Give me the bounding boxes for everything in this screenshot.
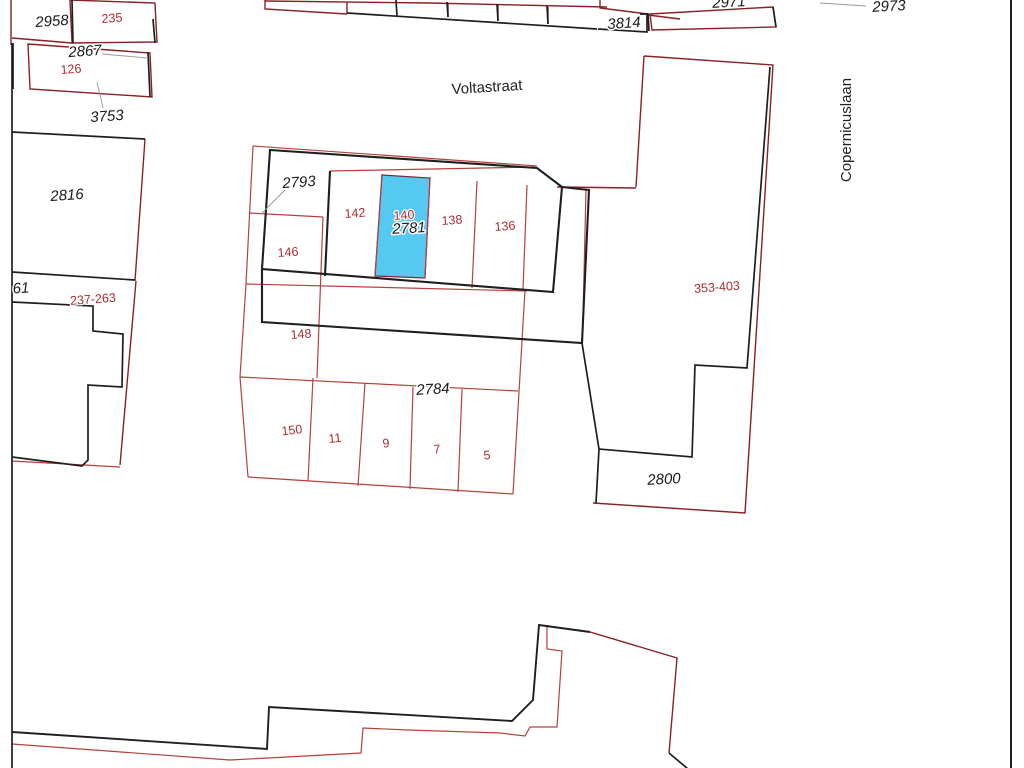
- subdivision-lines: [12, 146, 586, 760]
- parcel-label-2971: 2971: [711, 0, 746, 12]
- house-number-237-263: 237-263: [70, 291, 117, 308]
- street-label-Copernicuslaan: Copernicuslaan: [838, 78, 855, 182]
- parcel-label-2800: 2800: [646, 470, 682, 489]
- parcel-label-2793: 2793: [281, 173, 317, 192]
- house-number-126: 126: [60, 62, 82, 77]
- house-number-150: 150: [281, 422, 303, 438]
- house-number-5: 5: [483, 448, 491, 463]
- house-number-11: 11: [328, 431, 342, 446]
- house-number-148: 148: [290, 327, 312, 342]
- cadastral-boundaries: [11, 0, 776, 753]
- leader-lines: [97, 3, 866, 214]
- parcel-label-2973: 2973: [871, 0, 907, 16]
- cadastral-map: 295823528671263753281661237-263381429712…: [0, 0, 1024, 768]
- parcel-label-3753: 3753: [90, 107, 125, 126]
- street-label-Voltastraat: Voltastraat: [451, 77, 524, 98]
- cadastral-map-viewport[interactable]: 295823528671263753281661237-263381429712…: [0, 0, 1024, 768]
- parcel-label-2958: 2958: [34, 12, 70, 31]
- parcel-label-2784: 2784: [415, 380, 450, 399]
- house-number-7: 7: [433, 442, 441, 457]
- house-number-9: 9: [382, 436, 390, 451]
- parcel-label-3814: 3814: [607, 14, 641, 33]
- parcel-label-2816: 2816: [49, 186, 85, 205]
- house-number-146: 146: [277, 245, 299, 260]
- house-number-353-403: 353-403: [694, 279, 741, 296]
- parcel-label-61: 61: [12, 279, 30, 297]
- building-outlines: [12, 0, 1011, 768]
- house-number-136: 136: [494, 219, 516, 234]
- house-number-142: 142: [344, 206, 366, 221]
- parcel-label-2867: 2867: [67, 42, 103, 61]
- parcel-label-2781: 2781: [391, 219, 426, 238]
- house-number-235: 235: [101, 11, 123, 26]
- house-number-138: 138: [441, 213, 463, 228]
